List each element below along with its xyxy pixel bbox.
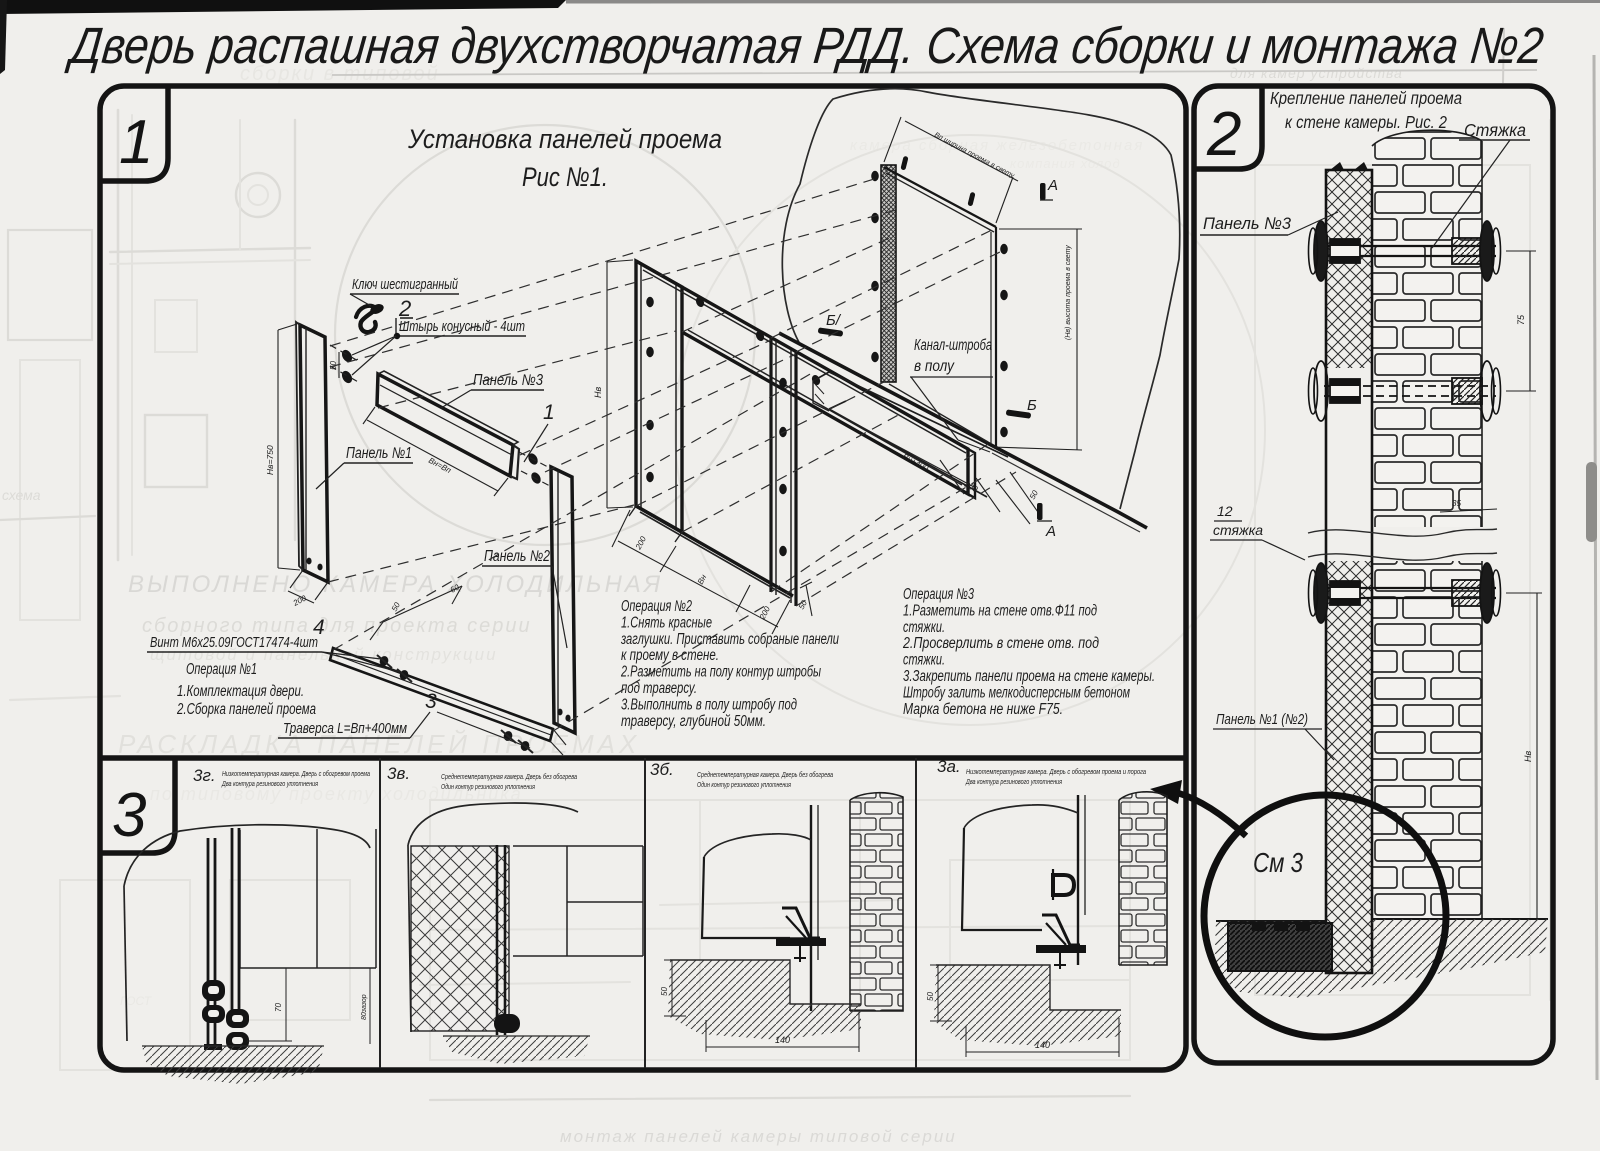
svg-text:Среднетемпературная камера. Дв: Среднетемпературная камера. Дверь без об… [441,772,577,781]
svg-text:50: 50 [660,987,669,996]
svg-text:Нв=750: Нв=750 [265,445,275,475]
svg-text:к проему в стене.: к проему в стене. [621,647,719,664]
svg-text:ВЫПОЛНЕНО КАМЕРА ХОЛОДИЛЬНАЯ: ВЫПОЛНЕНО КАМЕРА ХОЛОДИЛЬНАЯ [128,571,663,598]
svg-text:35: 35 [1452,499,1461,508]
svg-text:1.Комплектация двери.: 1.Комплектация двери. [177,683,304,700]
svg-text:Штробу залить мелкодисперсным: Штробу залить мелкодисперсным бетоном [903,684,1130,701]
svg-text:3.Закрепить панели проема на с: 3.Закрепить панели проема на стене камер… [903,668,1155,685]
svg-text:80зазор: 80зазор [361,994,368,1020]
svg-text:Б: Б [1027,397,1037,414]
svg-text:в полу: в полу [914,358,955,375]
svg-text:3.Выполнить в полу штробу под: 3.Выполнить в полу штробу под [621,696,797,713]
svg-text:3г.: 3г. [193,766,216,785]
svg-text:Один контур резинового уплотне: Один контур резинового уплотнения [441,782,535,791]
svg-text:2.Просверлить в стене отв.: 2.Просверлить в стене отв. под [902,635,1099,652]
svg-text:заглушки. Приставить собраные: заглушки. Приставить собраные панели [620,631,839,648]
svg-text:Установка панелей проема: Установка панелей проема [407,124,722,154]
svg-text:140: 140 [775,1035,790,1045]
svg-text:к стене камеры. Рис. 2: к стене камеры. Рис. 2 [1285,112,1447,132]
svg-text:2.Разметить на полу контур штр: 2.Разметить на полу контур штробы [620,664,821,681]
svg-text:монтаж панелей камеры типовой: монтаж панелей камеры типовой серии [560,1127,957,1146]
svg-text:140: 140 [1035,1040,1050,1050]
svg-text:75: 75 [1516,314,1526,325]
svg-text:Траверса L=Вп+400мм: Траверса L=Вп+400мм [283,720,407,737]
svg-text:Рис №1.: Рис №1. [522,162,608,192]
svg-text:стяжка: стяжка [1213,522,1263,538]
svg-text:3: 3 [425,690,437,713]
svg-text:Стяжка: Стяжка [1464,120,1526,140]
svg-text:Штырь конусный - 4шт: Штырь конусный - 4шт [399,318,525,335]
svg-text:Марка бетона не ниже F75.: Марка бетона не ниже F75. [903,701,1063,718]
svg-text:Низкотемпературная камера. Две: Низкотемпературная камера. Дверь с обогр… [966,767,1146,776]
svg-text:2.Сборка панелей проема: 2.Сборка панелей проема [176,701,316,718]
svg-text:Нв: Нв [593,387,603,398]
svg-text:1: 1 [119,108,153,177]
svg-text:1.Снять красные: 1.Снять красные [621,614,712,631]
svg-text:1.Разметить на стене отв.Ф11 п: 1.Разметить на стене отв.Ф11 под [903,602,1097,619]
svg-text:Два контура резинового уплотне: Два контура резинового уплотнения [221,779,318,788]
svg-text:Низкотемпературная камера. Две: Низкотемпературная камера. Дверь с обогр… [222,769,370,778]
svg-text:См 3: См 3 [1253,847,1303,878]
svg-text:Канал-штроба: Канал-штроба [914,337,992,354]
svg-text:70: 70 [274,1003,283,1012]
svg-text:Панель №3: Панель №3 [1203,214,1292,233]
svg-text:50: 50 [926,992,935,1001]
svg-text:1: 1 [543,401,555,424]
svg-text:2: 2 [1206,100,1241,169]
svg-text:стяжки.: стяжки. [903,619,945,636]
svg-text:Нв: Нв [1523,751,1533,762]
svg-text:стяжки.: стяжки. [903,652,945,669]
svg-text:Операция №1: Операция №1 [186,661,257,678]
svg-text:А: А [1047,177,1058,194]
svg-text:Б/: Б/ [826,312,842,329]
svg-text:(Нв) высота проема в свету: (Нв) высота проема в свету [1065,245,1072,340]
svg-text:схема: схема [2,487,41,503]
svg-text:12: 12 [1217,503,1233,519]
svg-text:Один контур резинового уплотне: Один контур резинового уплотнения [697,780,791,789]
svg-text:Среднетемпературная камера. Дв: Среднетемпературная камера. Дверь без об… [697,770,833,779]
svg-text:Ключ шестигранный: Ключ шестигранный [352,276,458,293]
svg-text:3в.: 3в. [387,764,410,783]
svg-text:А: А [1045,523,1056,540]
svg-text:3а.: 3а. [937,757,961,776]
svg-text:Панель №1 (№2): Панель №1 (№2) [1216,712,1308,728]
svg-text:Крепление панелей проема: Крепление панелей проема [1270,88,1462,108]
svg-text:3б.: 3б. [650,760,674,779]
svg-text:ГОСТ: ГОСТ [120,994,153,1008]
svg-text:Дверь распашная двухстворчатая: Дверь распашная двухстворчатая РДД. Схем… [64,17,1546,74]
svg-text:под траверсу.: под траверсу. [621,680,697,697]
svg-text:Два контура резинового уплотне: Два контура резинового уплотнения [965,777,1062,786]
svg-text:Операция №2: Операция №2 [621,598,692,615]
svg-text:Операция №3: Операция №3 [903,586,974,603]
svg-text:3: 3 [112,781,146,850]
svg-text:Винт М6х25.09ГОСТ17474-4шт: Винт М6х25.09ГОСТ17474-4шт [150,634,318,651]
svg-text:компания холод: компания холод [1010,156,1121,171]
svg-text:траверсу, глубиной 50мм.: траверсу, глубиной 50мм. [621,713,766,730]
svg-text:Панель №1: Панель №1 [346,445,412,462]
